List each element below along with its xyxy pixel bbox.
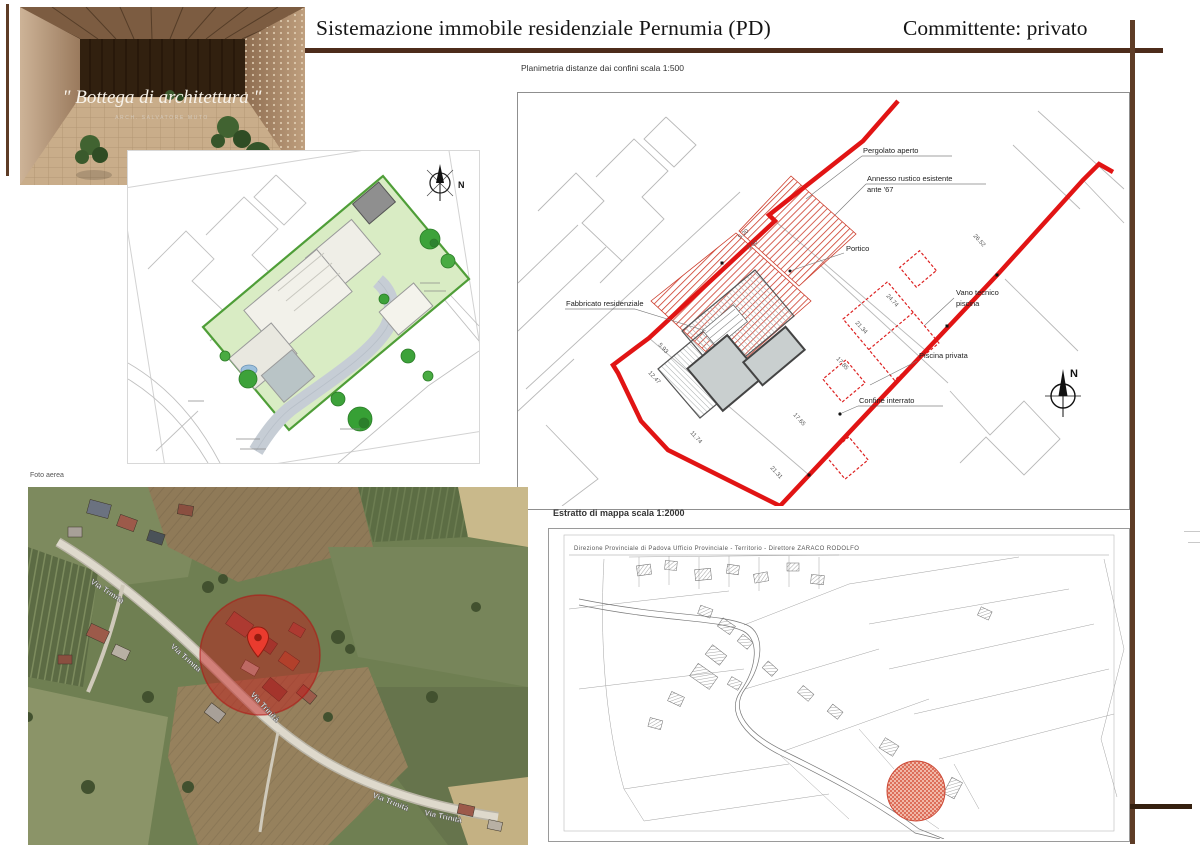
- dimension-label: 17.85: [835, 356, 850, 372]
- site-plan-north-label: N: [458, 180, 465, 190]
- cadastral-header: Direzione Provinciale di Padova Ufficio …: [574, 546, 859, 552]
- dimension-label: 12.47: [647, 370, 662, 386]
- site-plan-compass-icon: [427, 164, 453, 201]
- cadastral-parcels: [569, 555, 1124, 829]
- cadastral-buildings: [636, 560, 992, 798]
- tech-plan: 5.20 3.60 26.52 24.74 21.34 17.85 12.47 …: [517, 92, 1130, 510]
- site-plan: N: [127, 150, 480, 464]
- edge-fragment: [1188, 542, 1200, 543]
- dimension-label: 17.65: [792, 412, 807, 428]
- label-pergolato: Pergolato aperto: [863, 146, 918, 155]
- tech-plan-drawing: 5.20 3.60 26.52 24.74 21.34 17.85 12.47 …: [518, 93, 1126, 506]
- dimension-label: 24.74: [885, 293, 900, 309]
- label-portico: Portico: [846, 244, 869, 253]
- edge-fragment: [1184, 531, 1200, 532]
- tech-plan-caption: Planimetria distanze dai confini scala 1…: [521, 63, 684, 73]
- aerial-photo-image: Via Trinità Via Trinità Via Trinità Via …: [28, 487, 528, 845]
- aerial-caption: Foto aerea: [30, 472, 64, 479]
- page-title: Sistemazione immobile residenziale Pernu…: [316, 16, 771, 41]
- logo-subtitle: ARCH. SALVATORE MUTO: [115, 115, 209, 121]
- presentation-board: Sistemazione immobile residenziale Pernu…: [0, 0, 1200, 848]
- parcel-lines: [518, 111, 1124, 506]
- cadastral-map: Direzione Provinciale di Padova Ufficio …: [548, 528, 1130, 842]
- label-vano-tecnico-2: piscina: [956, 299, 980, 308]
- label-fabbricato: Fabbricato residenziale: [566, 299, 644, 308]
- aerial-photo: Via Trinità Via Trinità Via Trinità Via …: [28, 487, 528, 845]
- label-annesso-2: ante '67: [867, 185, 893, 194]
- logo-quote: " Bottega di architettura ": [63, 87, 263, 108]
- dimension-label: 21.31: [769, 465, 784, 481]
- label-piscina: Piscina privata: [919, 351, 969, 360]
- cadastral-caption: Estratto di mappa scala 1:2000: [553, 508, 685, 518]
- label-confine: Confine interrato: [859, 396, 914, 405]
- frame-left-rule: [6, 4, 9, 176]
- site-plan-drawing: N: [128, 151, 479, 463]
- frame-right-rule: [1130, 20, 1135, 844]
- dimension-label: 11.74: [689, 430, 704, 445]
- frame-bottom-rule: [1128, 804, 1192, 809]
- property-boundary: [613, 101, 1113, 506]
- tech-plan-north-label: N: [1070, 368, 1078, 380]
- dimension-label: 26.52: [972, 233, 987, 249]
- label-vano-tecnico: Vano tecnico: [956, 288, 999, 297]
- label-annesso: Annesso rustico esistente: [867, 174, 952, 183]
- cadastral-map-drawing: Direzione Provinciale di Padova Ufficio …: [549, 529, 1127, 839]
- cadastral-highlight-ellipse: [887, 761, 945, 821]
- client-label: Committente: privato: [903, 16, 1088, 41]
